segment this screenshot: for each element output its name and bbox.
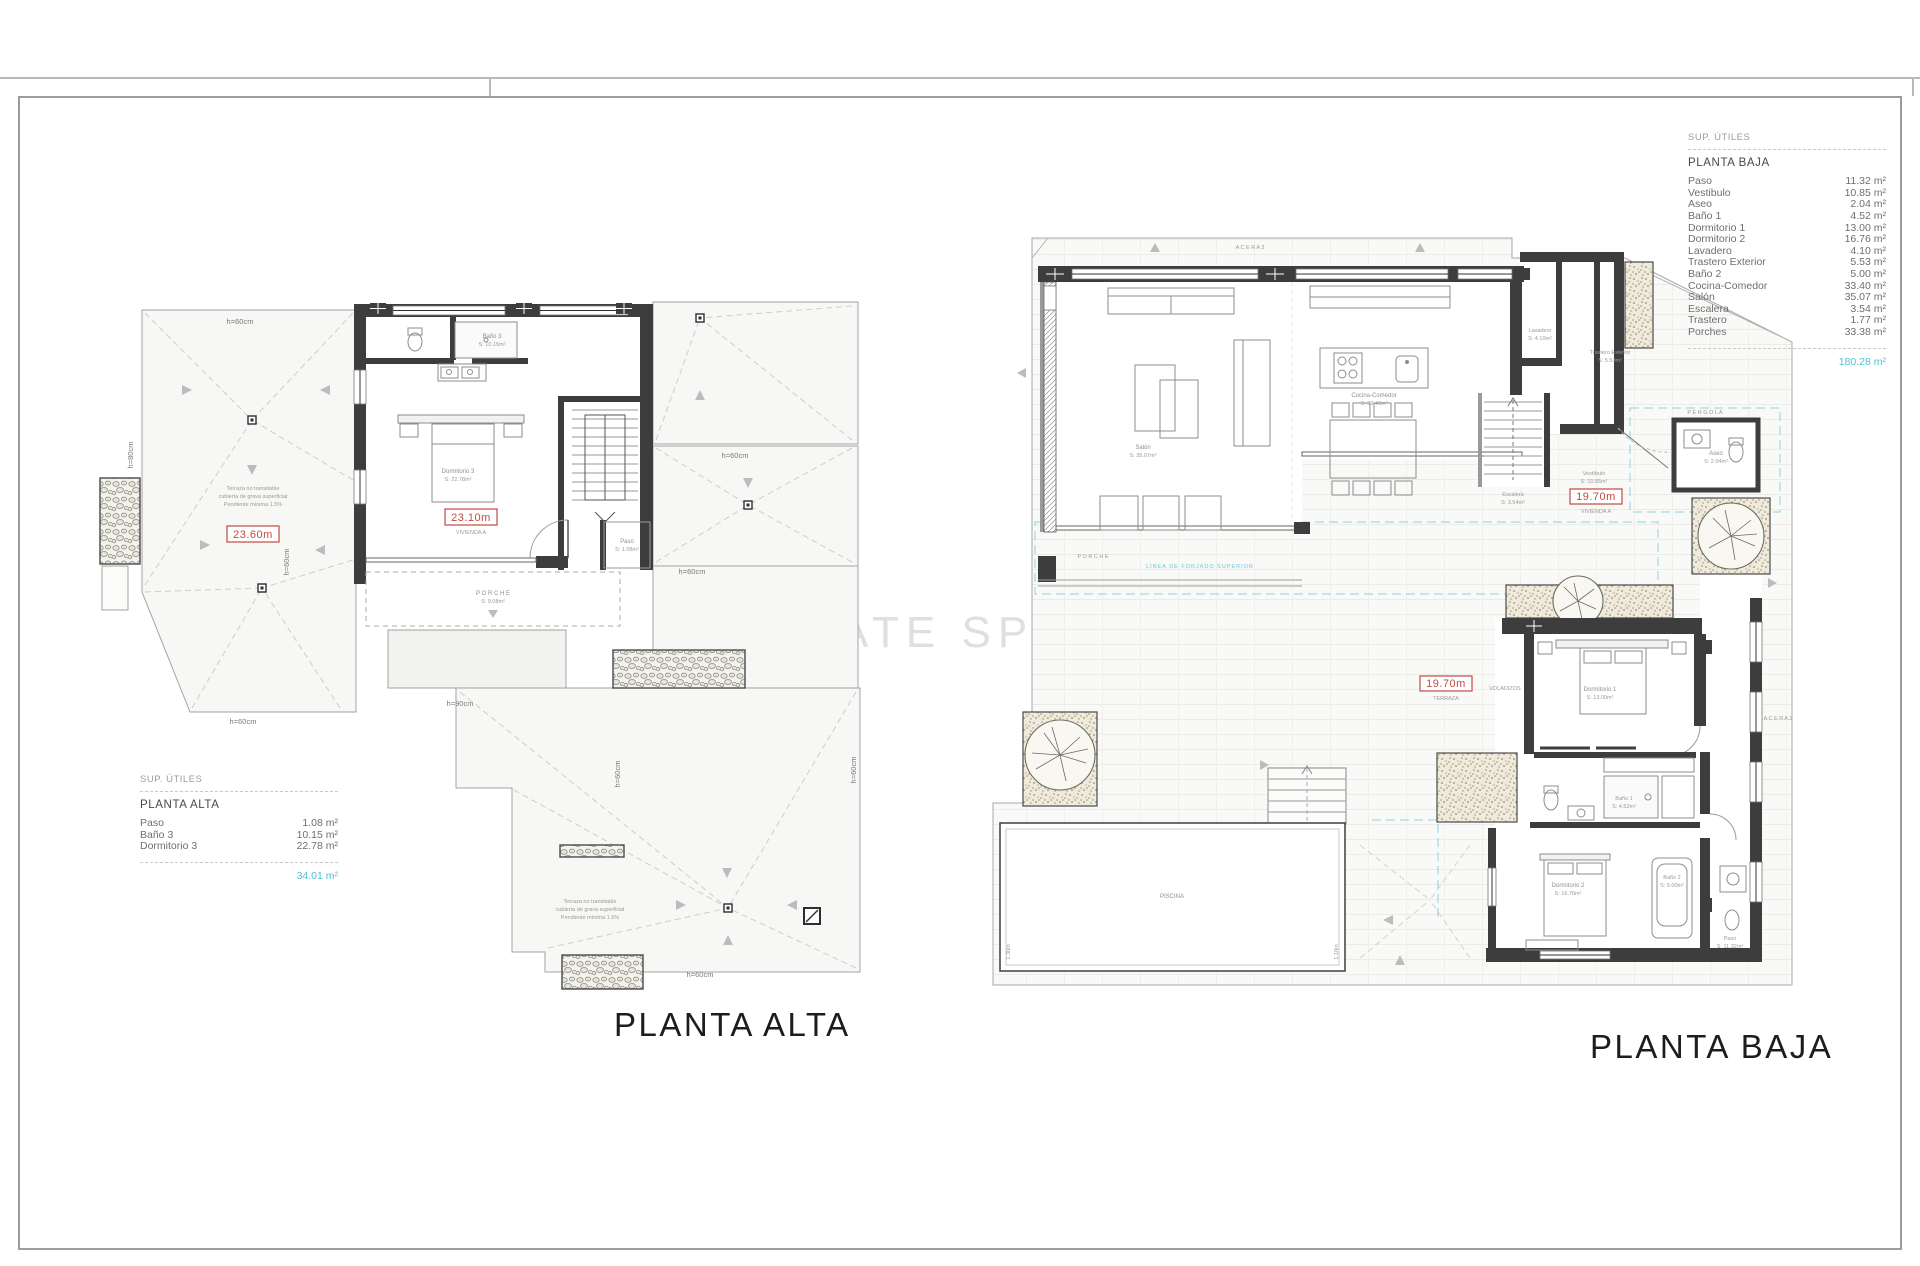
measure-dwelling-alta: 23.10m VIVIENDA A	[445, 509, 497, 536]
porch-label: P O R C H E	[1077, 554, 1108, 560]
plan-alta: h=60cm h=80cm h=60cm h=60cm h=90cm h=60c…	[100, 302, 860, 989]
room-label: Baño 1	[1615, 796, 1632, 802]
sliding-glass-door	[366, 558, 536, 562]
dim-label: h=60cm	[227, 317, 254, 326]
table-total: 34.01 m²	[140, 862, 338, 883]
tree-icon	[1025, 720, 1095, 790]
sliding-glass-door	[1056, 526, 1296, 530]
terrace-note: Pendiente mínima 1.5%	[224, 502, 283, 508]
svg-text:19.70m: 19.70m	[1576, 491, 1616, 503]
dim-label: h=60cm	[282, 549, 291, 576]
terrace-note: Terraza no transitable	[564, 899, 617, 905]
window	[1750, 862, 1762, 902]
table-header: SUP. ÚTILES	[1688, 132, 1886, 150]
room-label: Trastero Exterior	[1590, 350, 1631, 356]
plan-title-baja: PLANTA BAJA	[1590, 1028, 1833, 1066]
voladizos-label: VOLADIZOS	[1489, 686, 1521, 692]
exterior-stairs	[1268, 766, 1346, 824]
site-label: A C E R A 3	[1236, 245, 1265, 251]
room-area: S: 10.85m²	[1581, 479, 1608, 485]
room-area: S: 4.52m²	[1612, 804, 1636, 810]
room-label: Salón	[1135, 445, 1150, 451]
terrace-note: Pendiente mínima 1.5%	[561, 915, 620, 921]
window	[354, 470, 366, 504]
terrace-note: cubierta de grava superficial	[219, 494, 288, 500]
table-row: Salón35.07 m²	[1688, 292, 1886, 304]
window	[1458, 269, 1512, 279]
table-total: 180.28 m²	[1688, 348, 1886, 369]
pergola-label: P É R G O L A	[1687, 409, 1722, 416]
window	[1296, 269, 1448, 279]
table-row: Dormitorio 322.78 m²	[140, 841, 338, 853]
floor-plans-drawing: h=60cm h=80cm h=60cm h=60cm h=90cm h=60c…	[0, 0, 1920, 1266]
plan-baja: A C E R A 3 Salón S: 35.07m² Cocina-Come…	[993, 238, 1792, 985]
room-area: S: 9.08m²	[481, 599, 505, 605]
room-label: Aseo	[1709, 451, 1723, 457]
svg-text:TERRAZA: TERRAZA	[1433, 696, 1459, 702]
window	[1540, 951, 1610, 959]
measure-terrace-alta: 23.60m	[227, 526, 279, 542]
room-label: P O R C H E	[476, 591, 510, 597]
window	[1488, 868, 1496, 906]
area-table-baja: SUP. ÚTILES PLANTA BAJA Paso11.32 m² Ves…	[1688, 132, 1886, 368]
window	[1072, 269, 1258, 279]
window	[1750, 692, 1762, 732]
dim-label: h=60cm	[679, 567, 706, 576]
area-table-alta: SUP. ÚTILES PLANTA ALTA Paso1.08 m² Baño…	[140, 774, 338, 883]
room-area: S: 33.40m²	[1361, 401, 1388, 407]
window	[1750, 762, 1762, 802]
room-label: Escalera	[1502, 492, 1524, 498]
room-area: S: 3.54m²	[1501, 500, 1525, 506]
room-label: Baño 3	[482, 334, 502, 340]
room-label: Vestíbulo	[1583, 471, 1606, 477]
table-row: Porches33.38 m²	[1688, 327, 1886, 339]
room-label: Dormitorio 3	[442, 469, 475, 475]
svg-text:23.10m: 23.10m	[451, 512, 491, 524]
terrace-note: cubierta de grava superficial	[556, 907, 625, 913]
sliding-glass-door	[1302, 452, 1522, 456]
pool-label: PISCINA	[1160, 894, 1184, 900]
room-label: Dormitorio 2	[1552, 883, 1585, 889]
room-label: Lavadero	[1529, 328, 1552, 334]
room-label: Paso	[1724, 936, 1737, 942]
dim-label: h=60cm	[722, 451, 749, 460]
room-area: S: 22.78m²	[445, 477, 472, 483]
room-area: S: 4.10m²	[1528, 336, 1552, 342]
room-label: Paso	[620, 539, 634, 545]
window	[393, 306, 505, 315]
room-area: S: 35.07m²	[1130, 453, 1157, 459]
window	[540, 306, 628, 315]
pool-depth: 1.30m	[1006, 944, 1012, 960]
dim-label: h=90cm	[447, 699, 474, 708]
room-label: Baño 2	[1663, 875, 1680, 881]
plan-title-alta: PLANTA ALTA	[614, 1006, 851, 1044]
table-row: Baño 25.00 m²	[1688, 269, 1886, 281]
room-area: S: 16.76m²	[1555, 891, 1582, 897]
table-row: Baño 14.52 m²	[1688, 211, 1886, 223]
dim-label: h=60cm	[613, 761, 622, 788]
dim-label: h=60cm	[849, 757, 858, 784]
room-area: S: 5.00m²	[1660, 883, 1684, 889]
window	[1750, 622, 1762, 662]
tree-icon	[1698, 503, 1764, 569]
stairs	[572, 410, 638, 522]
slab-line-label: LÍNEA DE FORJADO SUPERIOR	[1146, 563, 1254, 570]
room-label: Cocina-Comedor	[1351, 393, 1396, 399]
pool-depth: 1.10m	[1334, 944, 1340, 960]
terrace-note: Terraza no transitable	[227, 486, 280, 492]
table-floor-title: PLANTA ALTA	[140, 800, 338, 812]
table-row: Dormitorio 216.76 m²	[1688, 234, 1886, 246]
dim-label: h=60cm	[687, 970, 714, 979]
svg-text:VIVIENDA A: VIVIENDA A	[456, 530, 487, 536]
dim-label: h=80cm	[126, 442, 135, 469]
room-area: S: 2.04m²	[1704, 459, 1728, 465]
svg-text:19.70m: 19.70m	[1426, 678, 1466, 690]
site-label: A C E R A 2	[1764, 716, 1793, 722]
room-area: S: 1.08m²	[615, 547, 639, 553]
svg-text:23.60m: 23.60m	[233, 529, 273, 541]
room-area: S: 5.53m²	[1598, 358, 1622, 364]
room-area: S: 10.15m²	[479, 342, 506, 348]
room-area: S: 11.32m²	[1717, 944, 1744, 950]
dim-label: h=60cm	[230, 717, 257, 726]
table-floor-title: PLANTA BAJA	[1688, 158, 1886, 170]
window	[354, 370, 366, 404]
svg-text:VIVIENDA A: VIVIENDA A	[1581, 509, 1612, 515]
table-header: SUP. ÚTILES	[140, 774, 338, 792]
room-area: S: 13.00m²	[1587, 695, 1614, 701]
room-label: Dormitorio 1	[1584, 687, 1617, 693]
